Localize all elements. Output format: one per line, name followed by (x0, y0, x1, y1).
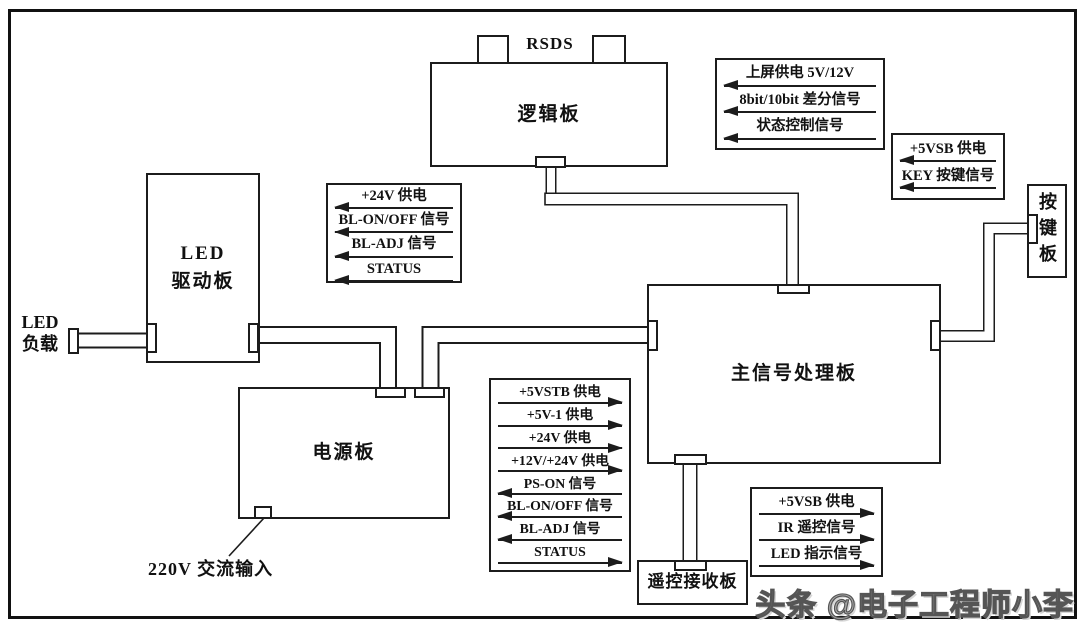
signal-row: +5V-1 供电 (496, 407, 624, 428)
connector-tab-remote-top (674, 560, 707, 571)
connector-tab-main-left (647, 320, 658, 351)
signal-row: +5VSB 供电 (898, 141, 998, 165)
connector-tab-led-left (146, 323, 157, 353)
signal-row: 8bit/10bit 差分信号 (722, 92, 878, 116)
led-load-label: LED 负载 (12, 312, 68, 355)
signal-arrow-icon (498, 516, 622, 518)
signal-label: 上屏供电 5V/12V (722, 65, 878, 81)
main-signal-board-label: 主信号处理板 (731, 360, 857, 388)
signal-arrow-icon (498, 470, 622, 472)
signal-row: LED 指示信号 (757, 546, 876, 570)
connector-tab-rsds-right (592, 35, 626, 64)
remote-receiver-board-label: 遥控接收板 (648, 570, 738, 595)
signal-row: BL-ON/OFF 信号 (496, 498, 624, 519)
power-board: 电源板 (238, 387, 450, 519)
logic-board-label: 逻辑板 (517, 101, 580, 129)
ac-input-label: 220V 交流输入 (148, 559, 273, 581)
signal-row: BL-ADJ 信号 (333, 236, 455, 260)
signal-arrow-icon (724, 111, 876, 113)
signal-row: 状态控制信号 (722, 118, 878, 142)
signal-arrow-icon (900, 187, 996, 189)
led-driver-board: LED 驱动板 (146, 173, 260, 363)
signal-row: BL-ON/OFF 信号 (333, 212, 455, 236)
signal-label: STATUS (333, 261, 455, 277)
annotation-remote-signals: +5VSB 供电 IR 遥控信号 LED 指示信号 (750, 487, 883, 577)
signal-row: STATUS (496, 544, 624, 565)
signal-arrow-icon (498, 402, 622, 404)
signal-label: +5V-1 供电 (496, 407, 624, 422)
connector-tab-main-top (777, 284, 810, 294)
signal-arrow-icon (759, 513, 874, 515)
signal-label: +5VSTB 供电 (496, 384, 624, 399)
signal-label: +5VSB 供电 (757, 494, 876, 510)
rsds-label: RSDS (508, 34, 592, 54)
connector-tab-led-right (248, 323, 259, 353)
signal-row: IR 遥控信号 (757, 520, 876, 544)
signal-arrow-icon (498, 539, 622, 541)
signal-label: BL-ON/OFF 信号 (496, 498, 624, 513)
annotation-backlight-signals: +24V 供电 BL-ON/OFF 信号 BL-ADJ 信号 STATUS (326, 183, 462, 283)
wire-logic-to-main (545, 164, 793, 290)
main-signal-board: 主信号处理板 (647, 284, 941, 464)
signal-arrow-icon (498, 562, 622, 564)
annotation-power-main-signals: +5VSTB 供电 +5V-1 供电 +24V 供电 +12V/+24V 供电 … (489, 378, 631, 572)
annotation-keypad-signals: +5VSB 供电 KEY 按键信号 (891, 133, 1005, 200)
power-board-label: 电源板 (312, 439, 375, 467)
signal-row: PS-ON 信号 (496, 476, 624, 497)
block-diagram-page: 逻辑板 LED 驱动板 电源板 主信号处理板 遥控接收板 按键板 上屏供电 5V… (0, 0, 1088, 631)
signal-label: LED 指示信号 (757, 546, 876, 562)
signal-arrow-icon (724, 85, 876, 87)
signal-row: +24V 供电 (333, 188, 455, 212)
signal-label: +24V 供电 (496, 430, 624, 445)
signal-row: KEY 按键信号 (898, 168, 998, 192)
connector-tab-power-top-2 (414, 387, 445, 398)
signal-arrow-icon (759, 539, 874, 541)
signal-label: BL-ON/OFF 信号 (333, 212, 455, 228)
signal-label: BL-ADJ 信号 (496, 521, 624, 536)
signal-row: 上屏供电 5V/12V (722, 65, 878, 89)
led-driver-board-label: LED 驱动板 (171, 240, 234, 295)
signal-arrow-icon (900, 160, 996, 162)
wire-main-to-keypad (936, 229, 1031, 337)
connector-tab-main-bottom (674, 454, 707, 465)
signal-arrow-icon (335, 231, 453, 233)
signal-row: +5VSB 供电 (757, 494, 876, 518)
signal-arrow-icon (759, 565, 874, 567)
signal-label: 8bit/10bit 差分信号 (722, 92, 878, 108)
watermark-text: 头条 @电子工程师小李 (755, 580, 1074, 624)
connector-tab-power-top-1 (375, 387, 406, 398)
logic-board: 逻辑板 (430, 62, 668, 167)
signal-row: STATUS (333, 261, 455, 285)
signal-label: PS-ON 信号 (496, 476, 624, 491)
signal-arrow-icon (335, 207, 453, 209)
connector-tab-ac-input (254, 506, 272, 519)
signal-row: +5VSTB 供电 (496, 384, 624, 405)
signal-label: IR 遥控信号 (757, 520, 876, 536)
signal-arrow-icon (498, 447, 622, 449)
signal-label: +12V/+24V 供电 (496, 453, 624, 468)
signal-row: BL-ADJ 信号 (496, 521, 624, 542)
signal-label: BL-ADJ 信号 (333, 236, 455, 252)
signal-label: +24V 供电 (333, 188, 455, 204)
signal-arrow-icon (498, 493, 622, 495)
ac-input-leader-line (229, 518, 264, 556)
signal-label: 状态控制信号 (722, 118, 878, 134)
signal-row: +24V 供电 (496, 430, 624, 451)
signal-row: +12V/+24V 供电 (496, 453, 624, 474)
wire-led-driver-to-power (253, 335, 388, 393)
connector-led-load (68, 328, 79, 354)
annotation-logic-main-signals: 上屏供电 5V/12V 8bit/10bit 差分信号 状态控制信号 (715, 58, 885, 150)
connector-tab-logic-bottom (535, 156, 566, 168)
signal-arrow-icon (498, 425, 622, 427)
connector-tab-rsds-left (477, 35, 509, 64)
signal-arrow-icon (335, 280, 453, 282)
signal-arrow-icon (335, 256, 453, 258)
signal-arrow-icon (724, 138, 876, 140)
connector-tab-main-right (930, 320, 941, 351)
connector-tab-keypad-left (1027, 214, 1038, 244)
signal-label: STATUS (496, 544, 624, 559)
